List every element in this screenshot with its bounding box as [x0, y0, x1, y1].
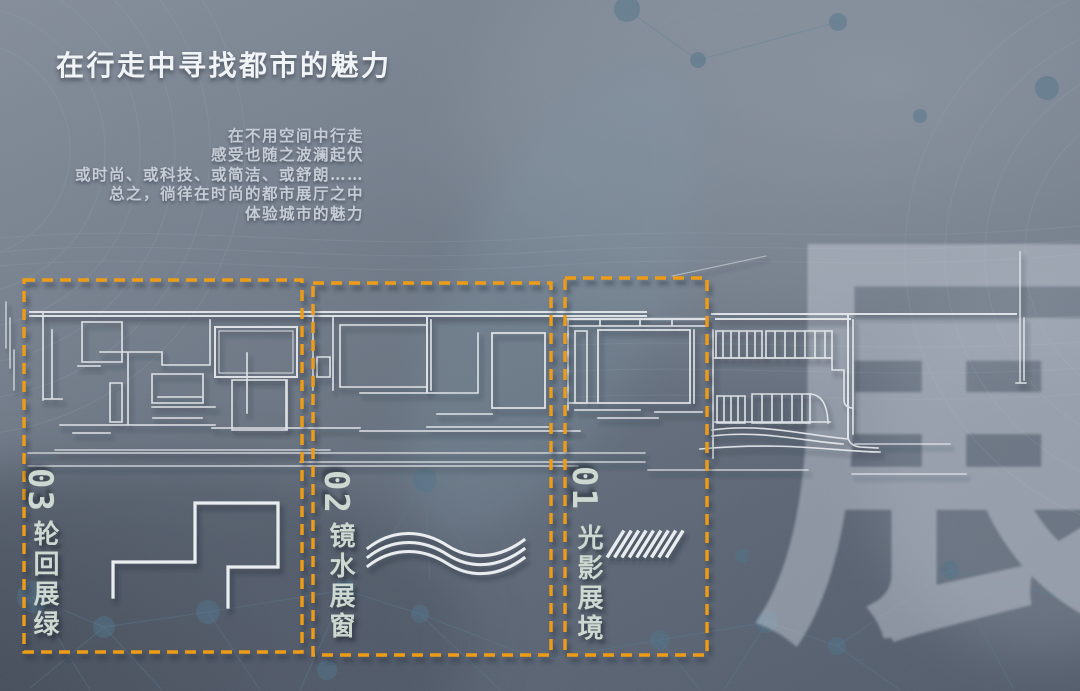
section-03-number: 03: [20, 468, 60, 513]
section-02-label: 镜水展窗: [323, 522, 360, 642]
presentation-board: 展: [0, 0, 1080, 691]
intro-paragraph: 在不用空间中行走 感受也随之波澜起伏 或时尚、或科技、或简洁、或舒朗…… 总之，…: [58, 126, 364, 223]
intro-line: 体验城市的魅力: [58, 204, 364, 223]
page-title: 在行走中寻找都市的魅力: [56, 44, 392, 84]
line-art-layer: [0, 0, 1080, 691]
water-waves-icon: [368, 533, 524, 573]
section-02-number: 02: [316, 470, 356, 515]
section-01-number: 01: [564, 466, 604, 511]
intro-line: 或时尚、或科技、或简洁、或舒朗……: [58, 165, 364, 184]
step-meander-icon: [113, 503, 278, 607]
section-03-label: 轮回展绿: [27, 520, 64, 640]
intro-line: 总之，徜徉在时尚的都市展厅之中: [58, 184, 364, 203]
light-slashes-icon: [608, 532, 682, 556]
intro-line: 感受也随之波澜起伏: [58, 145, 364, 164]
intro-line: 在不用空间中行走: [58, 126, 364, 145]
building-elevation-drawing: [6, 252, 1026, 474]
section-01-label: 光影展境: [571, 524, 608, 644]
